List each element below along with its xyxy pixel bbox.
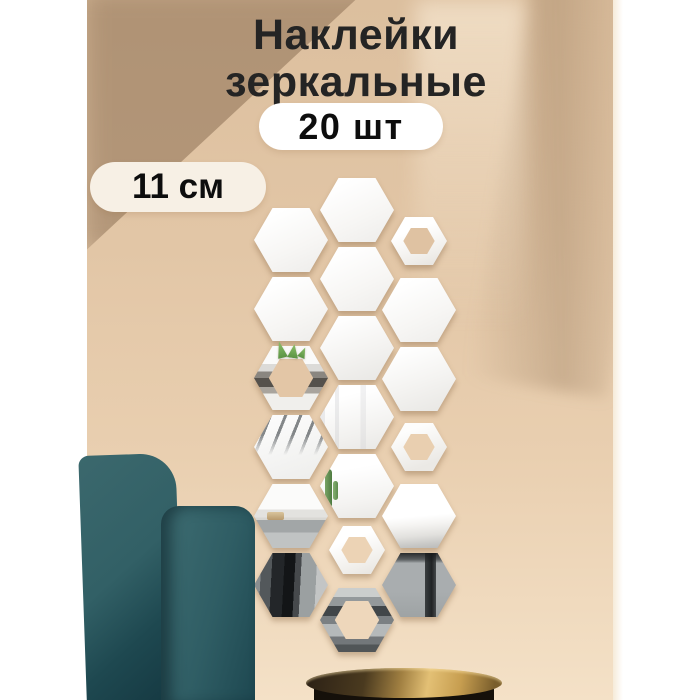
hexagon-ring-hole — [403, 434, 434, 461]
hexagon-ring-hole — [403, 228, 434, 255]
hexagon-mirror-face — [254, 415, 328, 479]
hexagon-ring-face — [391, 217, 447, 265]
hexagon-sticker-1 — [254, 208, 328, 272]
product-image: Наклейки зеркальные 20 шт 11 см — [0, 0, 700, 700]
hexagon-mirror-face — [254, 208, 328, 272]
hexagon-sticker-18 — [382, 484, 456, 548]
hexagon-sticker-12 — [329, 526, 385, 574]
count-badge: 20 шт — [259, 103, 443, 150]
hexagon-ring-face — [391, 423, 447, 471]
hexagon-sticker-14 — [391, 217, 447, 265]
hexagon-sticker-2 — [254, 277, 328, 341]
product-title-line2: зеркальные — [225, 58, 487, 106]
product-title-line1: Наклейки — [253, 11, 459, 59]
hexagon-mirror-face — [382, 347, 456, 411]
hexagon-sticker-15 — [382, 278, 456, 342]
hexagon-sticker-6 — [254, 553, 328, 617]
hexagon-mirror-face — [254, 553, 328, 617]
hexagon-mirror-face — [254, 484, 328, 548]
hexagon-mirror-face — [382, 484, 456, 548]
hexagon-sticker-5 — [254, 484, 328, 548]
lamp-base — [306, 668, 502, 700]
hexagon-mirror-face — [320, 178, 394, 242]
hexagon-mirror-face — [382, 553, 456, 617]
hexagon-ring-hole — [269, 359, 313, 397]
armchair-armrest — [161, 506, 255, 700]
size-badge: 11 см — [90, 162, 266, 212]
product-title: Наклейки зеркальные — [150, 12, 562, 107]
light-band-left — [0, 0, 87, 700]
hexagon-sticker-7 — [320, 178, 394, 242]
hexagon-sticker-19 — [382, 553, 456, 617]
hexagon-ring-face — [329, 526, 385, 574]
plant-reflection — [274, 341, 310, 358]
hexagon-mirror-face — [254, 277, 328, 341]
hexagon-ring-hole — [341, 537, 372, 564]
lamp-gold-rim — [306, 668, 502, 698]
hexagon-ring-hole — [335, 601, 379, 639]
light-band-right — [613, 0, 700, 700]
hexagon-mirror-face — [382, 278, 456, 342]
hexagon-sticker-17 — [391, 423, 447, 471]
hexagon-sticker-16 — [382, 347, 456, 411]
hexagon-sticker-4 — [254, 415, 328, 479]
